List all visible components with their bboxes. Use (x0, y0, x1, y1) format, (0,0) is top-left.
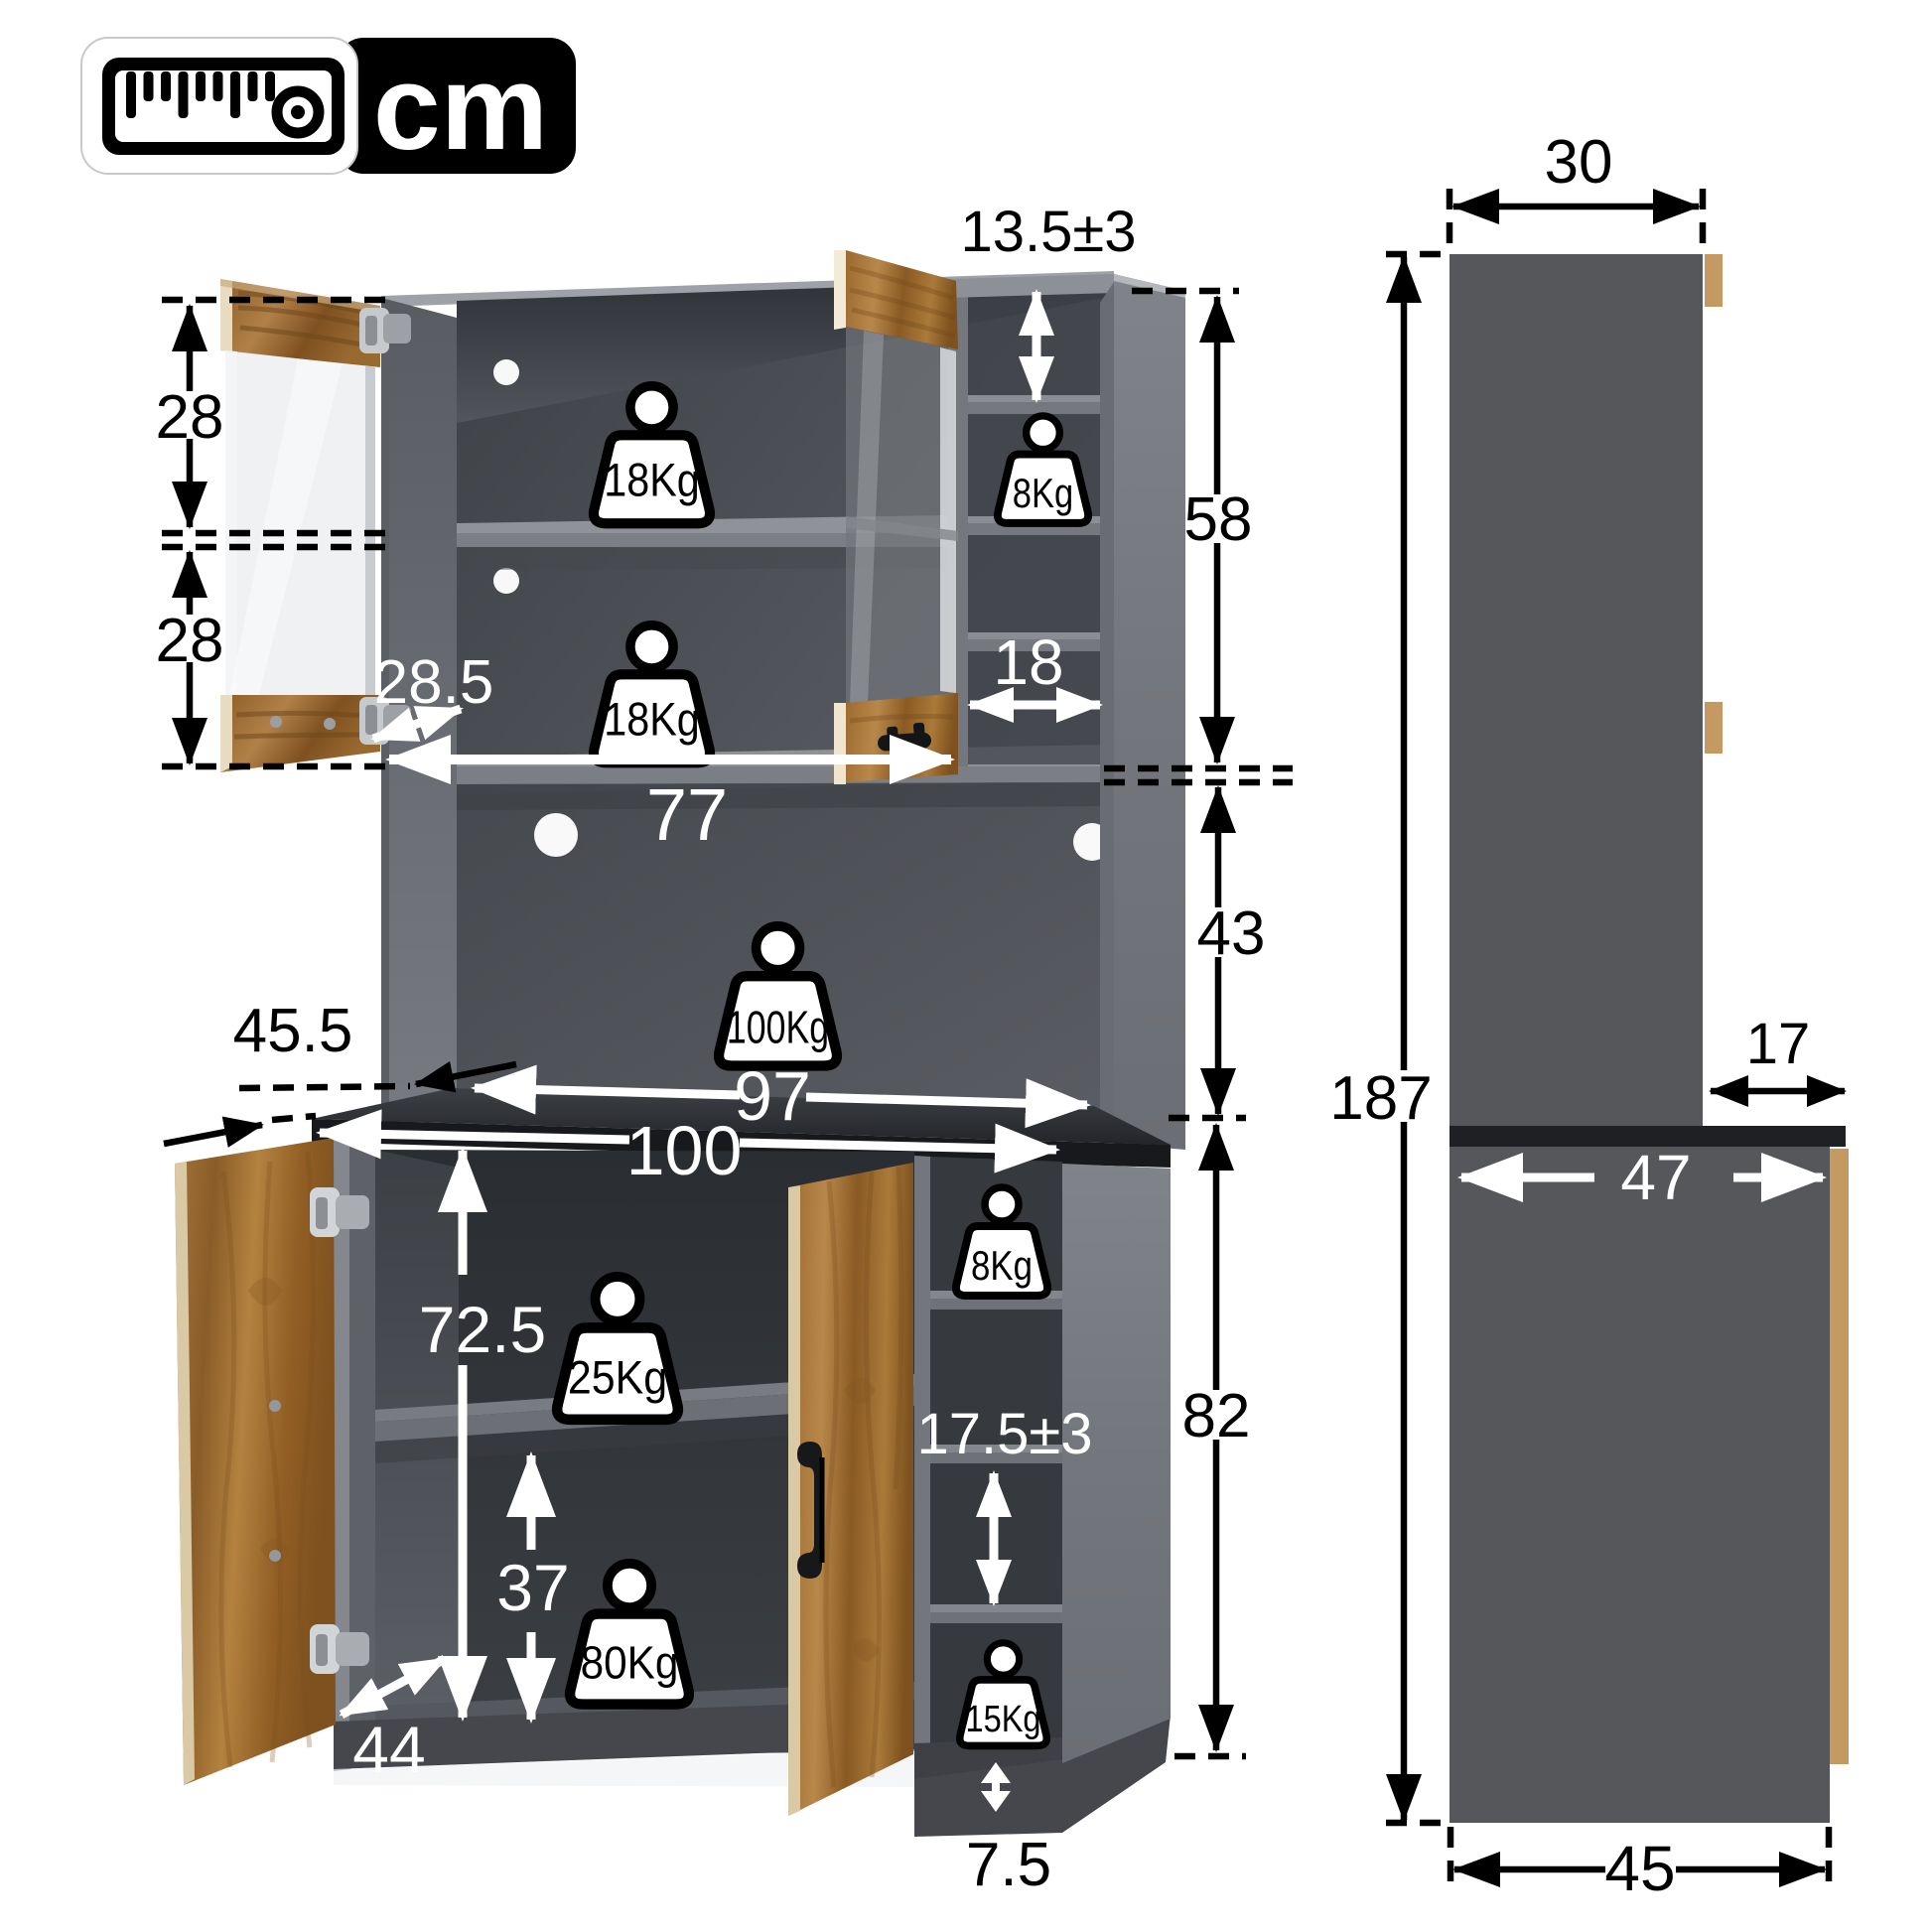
svg-text:100: 100 (626, 1112, 743, 1189)
svg-text:15Kg: 15Kg (966, 1699, 1041, 1740)
svg-text:7.5: 7.5 (966, 1831, 1051, 1899)
svg-text:17.5±3: 17.5±3 (917, 1402, 1093, 1466)
svg-text:45.5: 45.5 (233, 997, 353, 1065)
svg-text:8Kg: 8Kg (971, 1242, 1033, 1289)
svg-text:43: 43 (1197, 899, 1266, 968)
svg-text:28: 28 (156, 383, 224, 452)
svg-text:17: 17 (1746, 1012, 1811, 1076)
svg-text:18: 18 (993, 626, 1063, 698)
svg-text:58: 58 (1184, 485, 1253, 554)
svg-text:47: 47 (1620, 1142, 1691, 1213)
svg-text:28.5: 28.5 (374, 648, 494, 717)
svg-text:82: 82 (1182, 1382, 1251, 1450)
svg-text:25Kg: 25Kg (568, 1351, 667, 1404)
svg-text:77: 77 (646, 773, 728, 856)
svg-text:187: 187 (1329, 1064, 1432, 1133)
svg-text:8Kg: 8Kg (1013, 470, 1073, 516)
svg-text:100Kg: 100Kg (727, 1001, 829, 1052)
svg-text:18Kg: 18Kg (604, 453, 700, 505)
svg-text:45: 45 (1604, 1833, 1675, 1904)
svg-text:13.5±3: 13.5±3 (961, 200, 1137, 264)
svg-text:18Kg: 18Kg (604, 692, 700, 745)
svg-text:97: 97 (734, 1057, 811, 1135)
svg-text:cm: cm (373, 40, 548, 175)
svg-text:30: 30 (1545, 128, 1613, 197)
svg-text:28: 28 (156, 607, 224, 675)
svg-text:72.5: 72.5 (419, 1293, 546, 1366)
svg-text:37: 37 (496, 1551, 569, 1624)
svg-text:80Kg: 80Kg (581, 1637, 679, 1689)
svg-text:44: 44 (352, 1713, 425, 1786)
